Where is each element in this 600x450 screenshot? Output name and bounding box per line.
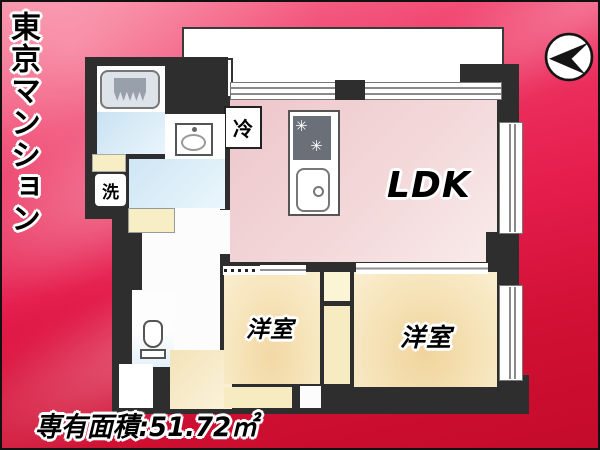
refrigerator-label: 冷 — [224, 106, 262, 149]
room-label-bedroom-large: 洋室 — [400, 318, 452, 354]
washbasin-area — [165, 114, 225, 160]
sink-icon — [296, 168, 330, 212]
room-hallway-lower — [176, 307, 220, 353]
wall-jut — [486, 232, 519, 276]
room-label-bedroom-small: 洋室 — [246, 310, 294, 344]
door-gap-hall-ldk — [220, 210, 230, 254]
closet-strip-upper — [324, 272, 350, 301]
window-ldk-east — [499, 122, 523, 234]
washing-machine-label: 洗 — [94, 173, 127, 207]
washbasin-icon — [175, 123, 213, 156]
closet-strip-lower — [324, 306, 350, 384]
refrigerator-text: 冷 — [233, 113, 253, 142]
stove-icon: ✳ ✳ — [293, 116, 331, 160]
wall-pillar — [335, 80, 365, 101]
bathtub-icon — [100, 70, 160, 109]
entrance-porch — [119, 364, 153, 408]
door-gap-south — [300, 386, 321, 408]
room-washroom — [129, 159, 225, 209]
window-north — [230, 82, 502, 100]
accordion-door — [223, 266, 260, 275]
area-label: 専有面積:51.72㎡ — [35, 405, 257, 444]
bathroom-floor — [97, 112, 165, 154]
washing-machine-text: 洗 — [102, 178, 119, 203]
flyer-canvas: ∙∙∙ 冷 ✳ ✳ LDK — [0, 0, 600, 450]
door-gap-bedroom-small — [260, 265, 306, 275]
toilet-icon — [140, 320, 168, 362]
room-bathroom — [97, 66, 165, 154]
room-bedroom-large: 洋室 — [354, 272, 497, 387]
room-label-ldk: LDK — [387, 165, 471, 206]
closet-shelf — [92, 154, 126, 172]
room-entrance — [170, 350, 232, 409]
closet-hall — [128, 208, 175, 233]
door-gap-bedroom-large — [356, 263, 488, 274]
window-bedroom-east — [499, 285, 523, 381]
room-bedroom-small: 洋室 — [224, 272, 320, 384]
kitchen-counter: ✳ ✳ — [288, 110, 340, 216]
property-title: 東京マンション — [7, 11, 37, 235]
north-arrow-icon — [543, 31, 595, 83]
